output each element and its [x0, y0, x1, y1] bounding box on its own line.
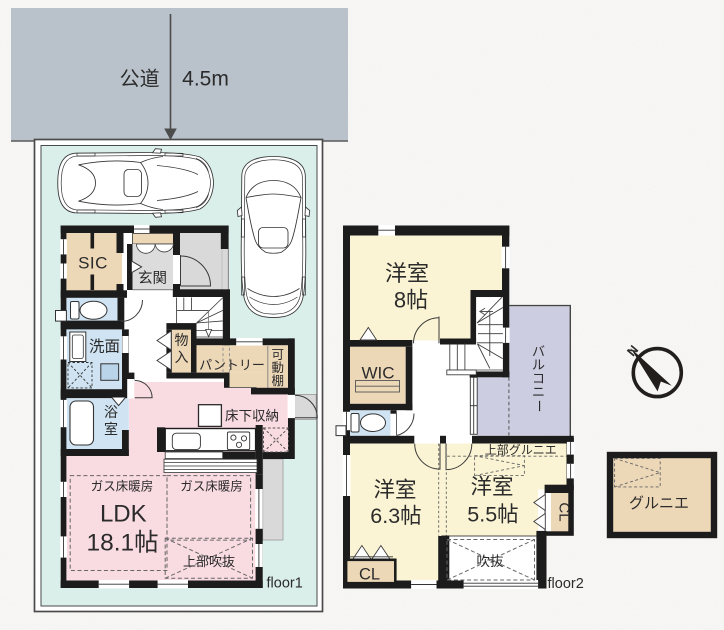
svg-text:物: 物	[175, 332, 189, 348]
svg-text:洗面: 洗面	[89, 338, 120, 356]
svg-text:ー: ー	[532, 399, 547, 412]
svg-text:上部吹抜: 上部吹抜	[183, 554, 235, 569]
svg-text:パントリー: パントリー	[199, 358, 265, 373]
svg-text:可: 可	[272, 348, 285, 362]
svg-text:5.5帖: 5.5帖	[467, 503, 518, 527]
svg-text:CL: CL	[359, 566, 380, 584]
svg-text:吹抜: 吹抜	[477, 554, 504, 569]
svg-text:室: 室	[104, 421, 118, 437]
svg-text:玄関: 玄関	[138, 270, 167, 287]
svg-text:6.3帖: 6.3帖	[370, 504, 421, 528]
svg-text:ガス床暖房: ガス床暖房	[180, 479, 243, 494]
svg-text:8帖: 8帖	[394, 288, 428, 313]
svg-text:18.1帖: 18.1帖	[87, 529, 159, 557]
svg-text:SIC: SIC	[78, 254, 108, 273]
svg-text:上部グルニエ: 上部グルニエ	[485, 442, 557, 457]
svg-text:動: 動	[272, 361, 285, 375]
svg-text:入: 入	[175, 349, 189, 365]
svg-text:棚: 棚	[272, 373, 285, 388]
svg-text:グルニエ: グルニエ	[629, 495, 689, 512]
svg-text:ニ: ニ	[532, 385, 545, 400]
svg-text:floor2: floor2	[548, 576, 584, 592]
svg-text:浴: 浴	[104, 404, 118, 420]
svg-text:WIC: WIC	[361, 364, 394, 383]
svg-text:洋室: 洋室	[470, 475, 513, 499]
svg-text:床下収納: 床下収納	[225, 409, 279, 424]
svg-text:公道: 公道	[120, 68, 160, 91]
svg-text:4.5m: 4.5m	[182, 68, 229, 91]
svg-text:洋室: 洋室	[373, 478, 416, 502]
svg-text:洋室: 洋室	[385, 261, 429, 286]
svg-text:LDK: LDK	[100, 501, 147, 528]
svg-text:CL: CL	[556, 502, 573, 521]
svg-text:floor1: floor1	[267, 576, 303, 592]
svg-text:ガス床暖房: ガス床暖房	[91, 479, 154, 494]
